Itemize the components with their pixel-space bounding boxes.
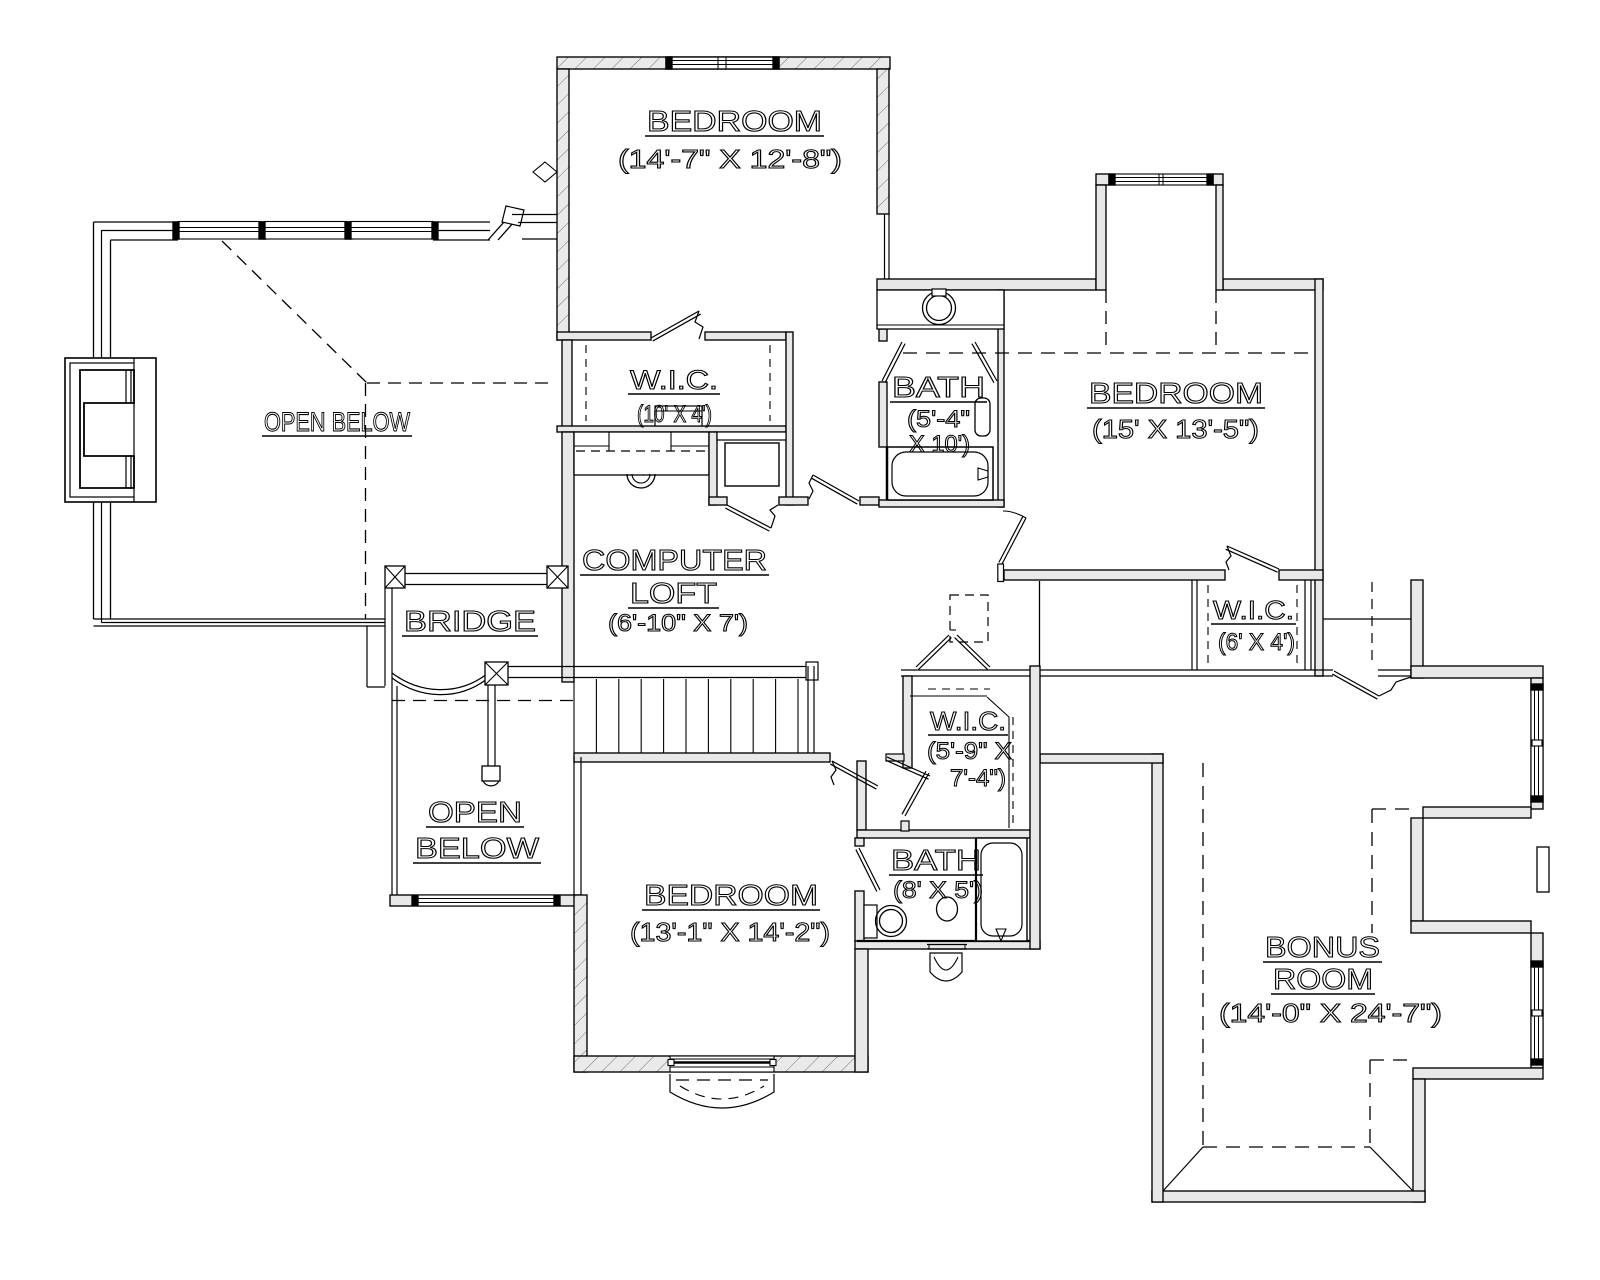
svg-text:BONUS: BONUS	[1265, 932, 1380, 964]
svg-text:BEDROOM: BEDROOM	[644, 880, 818, 912]
svg-text:W.I.C.: W.I.C.	[930, 706, 1006, 736]
svg-text:(13'-1" X 14'-2"): (13'-1" X 14'-2")	[630, 917, 830, 947]
svg-text:(8' X 5'): (8' X 5')	[893, 877, 983, 904]
svg-text:BEDROOM: BEDROOM	[647, 106, 822, 138]
svg-text:BELOW: BELOW	[415, 833, 540, 865]
svg-text:X 10'): X 10')	[909, 431, 970, 458]
svg-text:BRIDGE: BRIDGE	[404, 606, 536, 638]
svg-text:(14'-0" X 24'-7"): (14'-0" X 24'-7")	[1219, 998, 1442, 1028]
svg-text:BATH: BATH	[891, 845, 981, 877]
svg-text:(10' X 4'): (10' X 4')	[637, 401, 712, 428]
svg-text:W.I.C.: W.I.C.	[1213, 595, 1294, 625]
svg-text:(6'-10" X 7'): (6'-10" X 7')	[608, 610, 748, 637]
svg-text:COMPUTER: COMPUTER	[582, 545, 767, 577]
svg-text:(6' X 4'): (6' X 4')	[1218, 629, 1295, 656]
svg-text:(5'-4": (5'-4"	[907, 406, 970, 433]
svg-text:BEDROOM: BEDROOM	[1089, 378, 1263, 410]
svg-text:ROOM: ROOM	[1273, 964, 1373, 996]
svg-text:(14'-7" X 12'-8"): (14'-7" X 12'-8")	[618, 144, 842, 174]
svg-text:LOFT: LOFT	[630, 578, 717, 610]
svg-text:(15' X 13'-5"): (15' X 13'-5")	[1092, 414, 1259, 444]
svg-text:W.I.C.: W.I.C.	[630, 365, 718, 395]
svg-text:BATH: BATH	[892, 372, 985, 404]
svg-text:OPEN BELOW: OPEN BELOW	[264, 407, 410, 437]
svg-text:(5'-9" X: (5'-9" X	[927, 738, 1012, 765]
svg-text:7'-4"): 7'-4")	[950, 765, 1006, 792]
svg-text:OPEN: OPEN	[428, 797, 522, 829]
